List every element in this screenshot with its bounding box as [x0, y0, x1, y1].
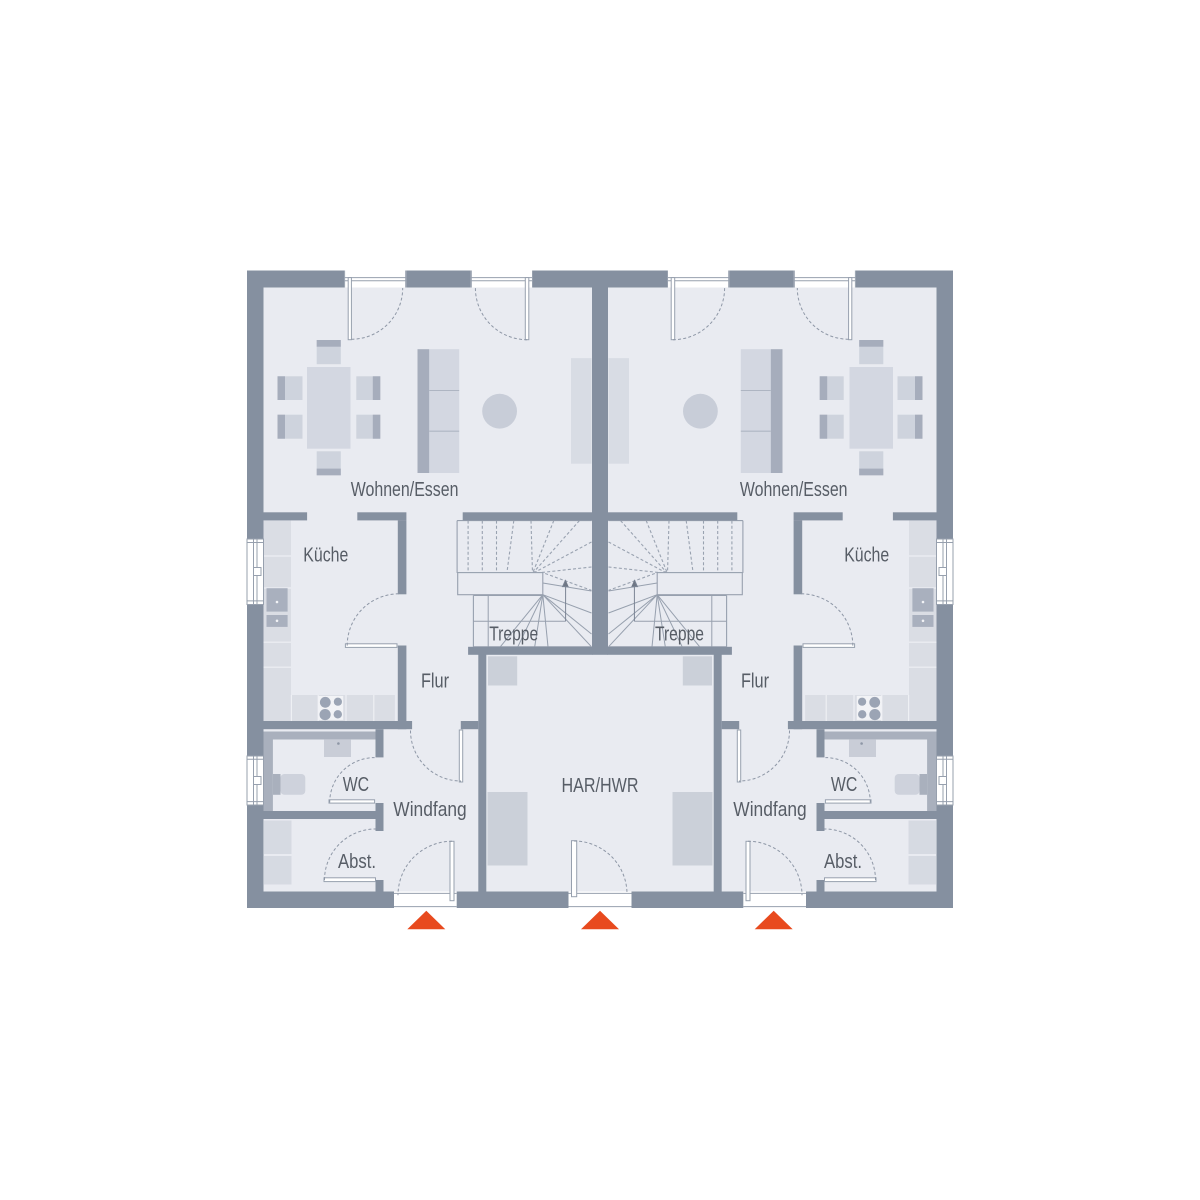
svg-text:Küche: Küche: [303, 545, 348, 567]
svg-text:Flur: Flur: [421, 671, 449, 693]
svg-text:Wohnen/Essen: Wohnen/Essen: [740, 479, 848, 501]
svg-text:Windfang: Windfang: [393, 799, 466, 821]
svg-text:WC: WC: [831, 774, 857, 796]
svg-text:Abst.: Abst.: [824, 851, 862, 873]
svg-text:Wohnen/Essen: Wohnen/Essen: [351, 479, 459, 501]
svg-text:Treppe: Treppe: [489, 624, 538, 646]
svg-text:HAR/HWR: HAR/HWR: [562, 775, 639, 797]
svg-text:Windfang: Windfang: [733, 799, 806, 821]
svg-text:Küche: Küche: [844, 545, 889, 567]
svg-text:Treppe: Treppe: [655, 624, 704, 646]
svg-text:Flur: Flur: [741, 671, 769, 693]
svg-text:Abst.: Abst.: [338, 851, 376, 873]
svg-text:WC: WC: [343, 774, 369, 796]
